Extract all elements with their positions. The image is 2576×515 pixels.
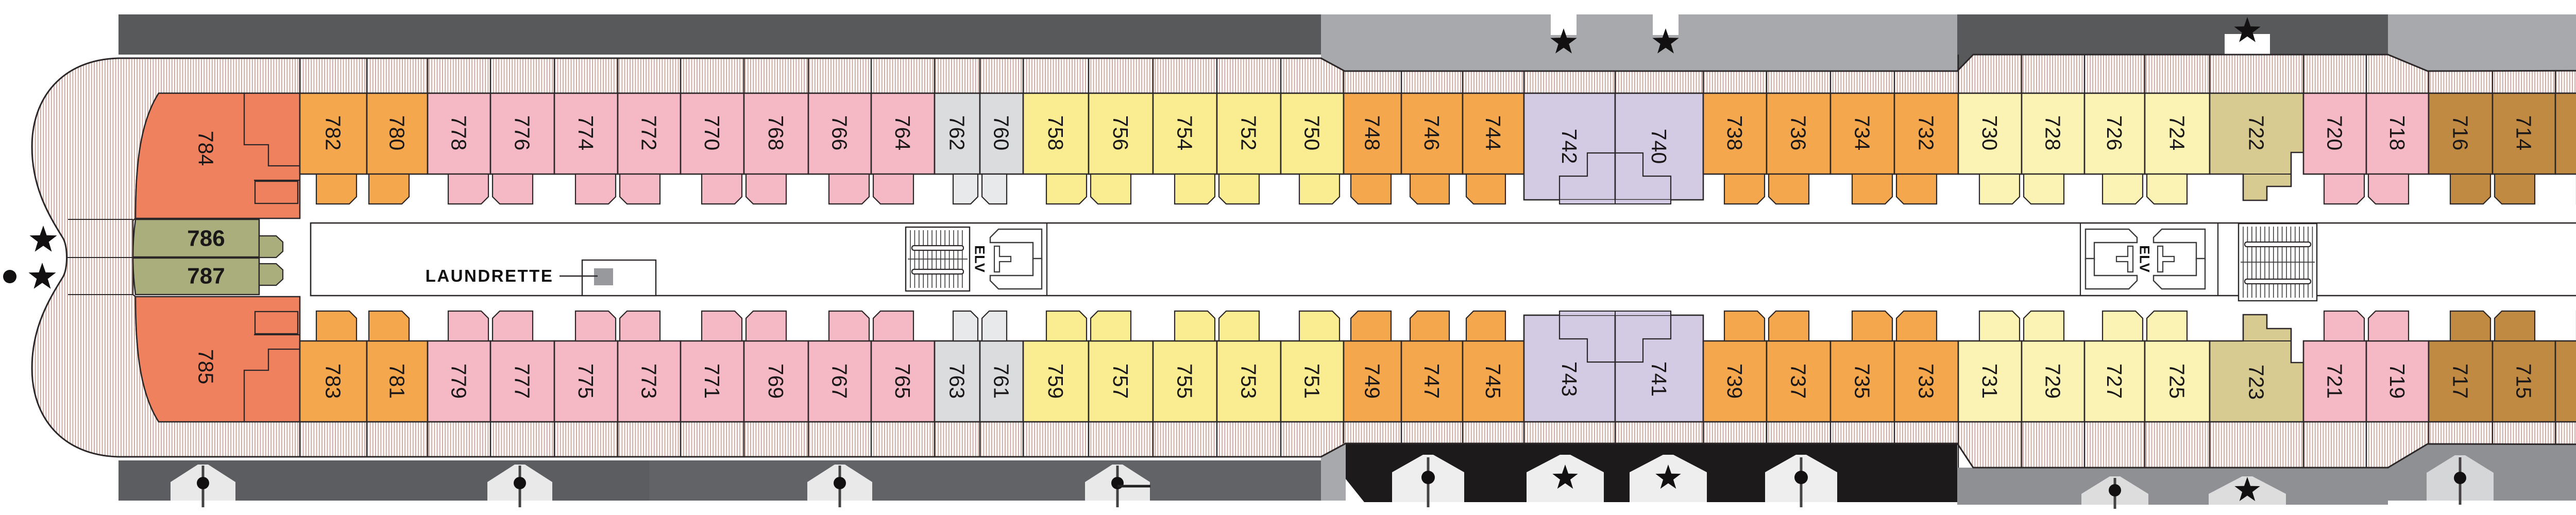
svg-text:724: 724 xyxy=(2165,115,2189,150)
svg-text:768: 768 xyxy=(764,115,788,150)
svg-text:737: 737 xyxy=(1787,364,1810,399)
svg-text:781: 781 xyxy=(385,364,409,399)
svg-text:764: 764 xyxy=(891,115,914,150)
svg-text:766: 766 xyxy=(828,115,852,150)
svg-text:734: 734 xyxy=(1851,115,1874,150)
svg-text:785: 785 xyxy=(194,349,218,384)
svg-text:780: 780 xyxy=(385,115,409,150)
svg-text:777: 777 xyxy=(511,364,534,399)
svg-text:757: 757 xyxy=(1109,364,1132,399)
svg-text:773: 773 xyxy=(637,364,661,399)
svg-text:726: 726 xyxy=(2103,115,2126,150)
svg-text:719: 719 xyxy=(2385,364,2409,399)
svg-text:715: 715 xyxy=(2512,364,2536,399)
svg-text:786: 786 xyxy=(187,226,225,251)
svg-text:731: 731 xyxy=(1978,364,2002,399)
svg-text:743: 743 xyxy=(1557,362,1581,397)
svg-text:738: 738 xyxy=(1723,115,1747,150)
svg-text:735: 735 xyxy=(1851,364,1874,399)
svg-text:769: 769 xyxy=(764,364,788,399)
svg-text:748: 748 xyxy=(1361,115,1384,150)
svg-text:783: 783 xyxy=(321,364,345,399)
svg-text:714: 714 xyxy=(2512,115,2536,150)
svg-text:727: 727 xyxy=(2103,364,2126,399)
svg-text:770: 770 xyxy=(700,115,724,150)
svg-text:LAUNDRETTE: LAUNDRETTE xyxy=(426,266,554,285)
svg-text:749: 749 xyxy=(1361,364,1384,399)
svg-text:756: 756 xyxy=(1109,115,1132,150)
svg-text:723: 723 xyxy=(2245,365,2268,400)
svg-text:747: 747 xyxy=(1420,364,1444,399)
svg-text:765: 765 xyxy=(891,364,914,399)
svg-text:755: 755 xyxy=(1173,364,1197,399)
svg-text:746: 746 xyxy=(1420,115,1444,150)
svg-text:763: 763 xyxy=(945,364,969,399)
svg-text:787: 787 xyxy=(187,263,225,288)
svg-text:717: 717 xyxy=(2449,364,2472,399)
svg-text:744: 744 xyxy=(1481,115,1505,150)
svg-text:776: 776 xyxy=(511,115,534,150)
svg-text:754: 754 xyxy=(1173,115,1197,150)
svg-text:733: 733 xyxy=(1914,364,1938,399)
svg-text:750: 750 xyxy=(1300,115,1324,150)
svg-text:784: 784 xyxy=(194,131,218,166)
svg-text:753: 753 xyxy=(1237,364,1261,399)
svg-text:730: 730 xyxy=(1978,115,2002,150)
svg-text:729: 729 xyxy=(2041,364,2065,399)
svg-text:772: 772 xyxy=(637,115,661,150)
svg-text:762: 762 xyxy=(945,115,969,150)
svg-text:732: 732 xyxy=(1914,115,1938,150)
svg-text:718: 718 xyxy=(2385,115,2409,150)
svg-text:774: 774 xyxy=(574,115,598,150)
svg-text:ELV: ELV xyxy=(972,245,988,273)
svg-text:ELV: ELV xyxy=(2137,245,2153,273)
svg-text:767: 767 xyxy=(828,364,852,399)
svg-text:739: 739 xyxy=(1723,364,1747,399)
svg-text:720: 720 xyxy=(2323,115,2347,150)
svg-text:741: 741 xyxy=(1647,362,1671,397)
svg-text:722: 722 xyxy=(2245,115,2268,150)
svg-text:782: 782 xyxy=(321,115,345,150)
svg-text:725: 725 xyxy=(2165,364,2189,399)
svg-text:758: 758 xyxy=(1044,115,1067,150)
svg-text:740: 740 xyxy=(1647,129,1671,164)
svg-text:761: 761 xyxy=(990,364,1013,399)
svg-text:759: 759 xyxy=(1044,364,1067,399)
svg-text:721: 721 xyxy=(2323,364,2347,399)
svg-text:736: 736 xyxy=(1787,115,1810,150)
svg-text:775: 775 xyxy=(574,364,598,399)
svg-text:752: 752 xyxy=(1237,115,1261,150)
svg-text:751: 751 xyxy=(1300,364,1324,399)
svg-text:716: 716 xyxy=(2449,115,2472,150)
svg-text:778: 778 xyxy=(447,115,471,150)
svg-text:771: 771 xyxy=(700,364,724,399)
svg-text:745: 745 xyxy=(1481,364,1505,399)
svg-text:760: 760 xyxy=(990,115,1013,150)
svg-text:742: 742 xyxy=(1557,129,1581,164)
svg-text:779: 779 xyxy=(447,364,471,399)
svg-text:728: 728 xyxy=(2041,115,2065,150)
